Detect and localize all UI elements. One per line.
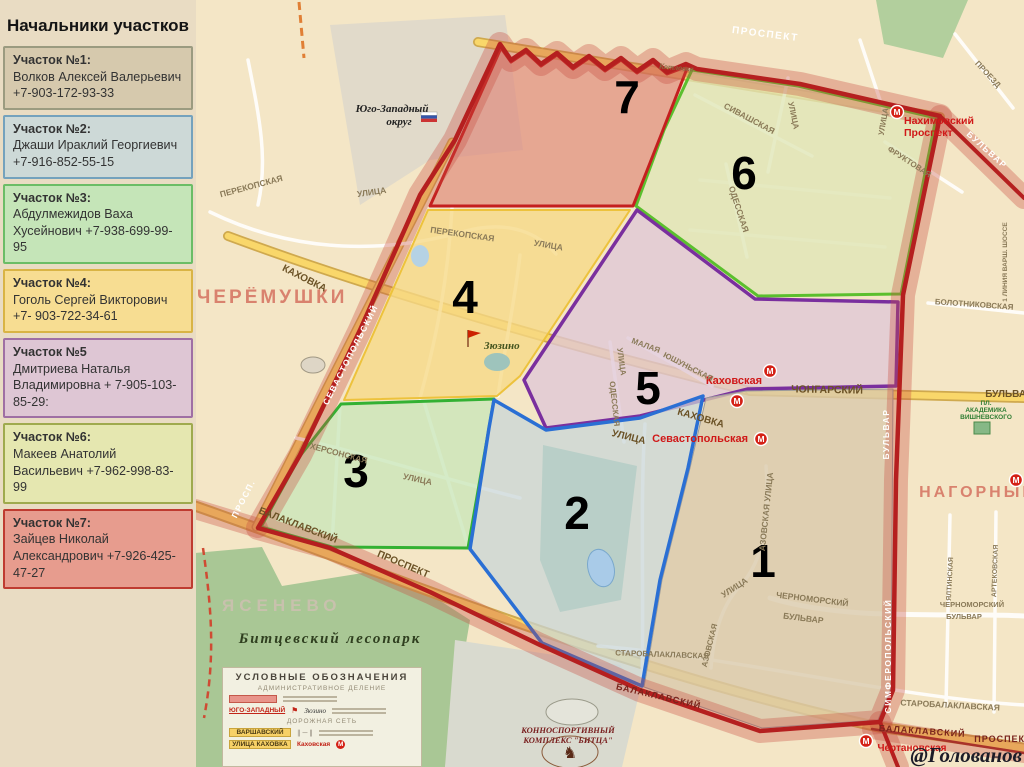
key-description-bars	[283, 696, 337, 702]
place-label-zuzino: Зюзино	[483, 340, 520, 352]
section-5-label: Участок №5	[13, 344, 183, 361]
section-box-2: Участок №2: Джаши Ираклий Георгиевич +7-…	[3, 115, 193, 179]
boundary-swatch	[229, 695, 277, 703]
pond-zuzino	[484, 353, 510, 371]
slide: ♞ 7 6 4 5 3 2 1 ПРОСПЕКТ Котловка Нахимо…	[0, 0, 1024, 767]
metro-label-sevastopolskaya: Севастопольская	[652, 433, 748, 445]
section-1-name: Волков Алексей Валерьевич	[13, 70, 181, 84]
map-key-title: УСЛОВНЫЕ ОБОЗНАЧЕНИЯ	[229, 672, 415, 683]
place-label-okrug: округ	[386, 116, 411, 128]
metro-icon-chertanovskaya: М	[860, 735, 873, 748]
street-label-bulvar-vert: БУЛЬВАР	[881, 409, 891, 460]
metro-label-nahimovsky-2: Проспект	[904, 127, 953, 139]
flag-icon: ⚑	[291, 706, 298, 715]
metro-icon-nahimovsky: М	[891, 106, 904, 119]
street-label-bulvar-r: БУЛЬВАР	[985, 389, 1024, 400]
svg-text:М: М	[757, 434, 764, 444]
place-label-nagorny: НАГОРНЫЙ	[919, 482, 1024, 501]
section-box-3: Участок №3: Абдулмежидов Ваха Хусейнович…	[3, 184, 193, 264]
square-vishnevskogo	[974, 422, 990, 434]
stadium-oval	[301, 357, 325, 373]
panel-title: Начальники участков	[7, 16, 191, 36]
section-1-label: Участок №1:	[13, 52, 183, 69]
section-box-6: Участок №6: Макеев Анатолий Васильевич +…	[3, 423, 193, 503]
metro-icon-sevastopolskaya: М	[755, 433, 768, 446]
svg-text:М: М	[1012, 475, 1019, 485]
svg-text:М: М	[733, 396, 740, 406]
section-2-label: Участок №2:	[13, 121, 183, 138]
section-4-name: Гоголь Сергей Викторович	[13, 293, 167, 307]
place-label-konno-1: КОННОСПОРТИВНЫЙ	[520, 725, 615, 735]
map-key: УСЛОВНЫЕ ОБОЗНАЧЕНИЯ АДМИНИСТРАТИВНОЕ ДЕ…	[222, 667, 422, 767]
section-1-phone: +7-903-172-93-33	[13, 86, 114, 100]
section-7-name: Зайцев Николай Александрович	[13, 532, 109, 563]
section-4-label: Участок №4:	[13, 275, 183, 292]
district-name-sample: ЮГО-ЗАПАДНЫЙ	[229, 707, 285, 714]
section-box-7: Участок №7: Зайцев Николай Александрович…	[3, 509, 193, 589]
pond-district4	[411, 245, 429, 267]
street-label-chongarsky: ЧОНГАРСКИЙ	[791, 382, 863, 396]
metro-icon-kahovskaya-1: М	[764, 365, 777, 378]
section-6-label: Участок №6:	[13, 429, 183, 446]
street-label-linia-varsh: 1 ЛИНИЯ ВАРШ. ШОССЕ	[1002, 222, 1009, 302]
district-number-5: 5	[635, 362, 661, 414]
section-box-5: Участок №5 Дмитриева Наталья Владимировн…	[3, 338, 193, 418]
section-2-phone: +7-916-852-55-15	[13, 155, 114, 169]
metro-icon-kahovskaya-2: М	[731, 395, 744, 408]
chiefs-panel: Начальники участков Участок №1: Волков А…	[0, 0, 196, 767]
section-3-label: Участок №3:	[13, 190, 183, 207]
horse-icon: ♞	[563, 745, 577, 762]
street-label-bulvar-r2: БУЛЬВАР	[946, 612, 982, 621]
street-swatch: УЛИЦА КАХОВКА	[229, 740, 291, 749]
place-label-pl-1: ПЛ.	[980, 400, 991, 407]
district-number-4: 4	[452, 271, 478, 323]
section-box-4: Участок №4: Гоголь Сергей Викторович +7-…	[3, 269, 193, 333]
watermark: @Голованов	[910, 743, 1022, 767]
svg-text:М: М	[893, 107, 900, 117]
district-number-2: 2	[564, 487, 590, 539]
place-label-konno-2: КОМПЛЕКС "БИТЦА"	[522, 735, 613, 745]
metro-label-kahovskaya: Каховская	[706, 375, 762, 387]
svg-text:М: М	[862, 736, 869, 746]
bridge-glyphs: ∥ ─ ∥	[297, 729, 313, 737]
place-label-pl-3: ВИШНЕВСКОГО	[960, 414, 1012, 421]
map-key-section-2: ДОРОЖНАЯ СЕТЬ	[229, 718, 415, 725]
metro-label-nahimovsky-1: Нахимовский	[904, 115, 974, 127]
metro-sample-icon: М	[336, 740, 345, 749]
svg-text:М: М	[766, 366, 773, 376]
metro-sample-name: Каховская	[297, 741, 330, 748]
street-label-simferopolsky: СИМФЕРОПОЛЬСКИЙ	[882, 599, 893, 714]
russia-flag-icon	[421, 112, 437, 122]
metro-icon-east: М	[1010, 474, 1023, 487]
section-box-1: Участок №1: Волков Алексей Валерьевич +7…	[3, 46, 193, 110]
section-4-phone: +7- 903-722-34-61	[13, 309, 118, 323]
settlement-sample: Зюзино	[304, 707, 326, 715]
place-label-ygo-zapadny: Юго-Западный	[355, 103, 429, 115]
district-number-7: 7	[614, 71, 640, 123]
place-label-bitsevsky: Битцевский лесопарк	[238, 631, 422, 647]
section-7-label: Участок №7:	[13, 515, 183, 532]
place-label-pl-2: АКАДЕМИКА	[965, 407, 1007, 414]
major-road-swatch: ВАРШАВСКИЙ	[229, 728, 291, 737]
bitsa-track-1	[546, 699, 598, 725]
map-key-section-1: АДМИНИСТРАТИВНОЕ ДЕЛЕНИЕ	[229, 685, 415, 692]
place-label-yasenevo: ЯСЕНЕВО	[222, 596, 342, 615]
section-2-name: Джаши Ираклий Георгиевич	[13, 138, 177, 152]
